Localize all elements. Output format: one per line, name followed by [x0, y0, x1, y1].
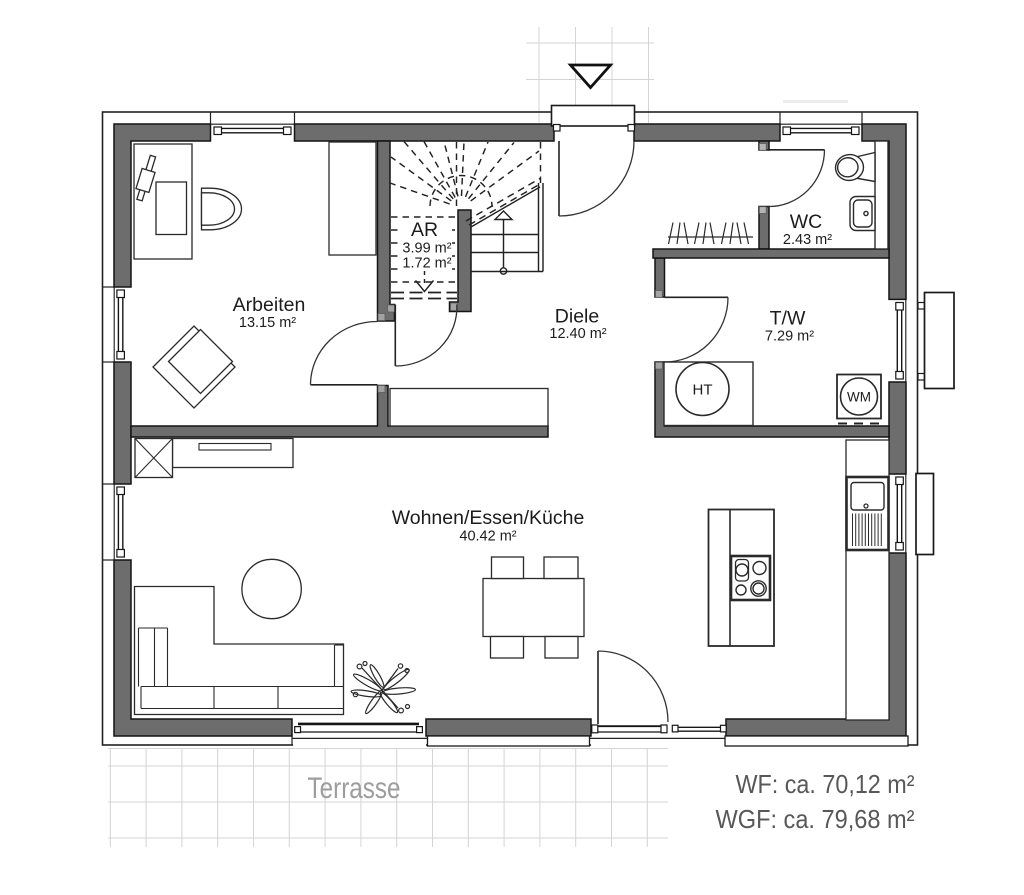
- svg-text:13.15 m²: 13.15 m²: [239, 315, 296, 331]
- svg-text:12.40 m²: 12.40 m²: [549, 326, 606, 342]
- svg-text:Arbeiten: Arbeiten: [233, 294, 306, 316]
- svg-text:7.29 m²: 7.29 m²: [765, 329, 814, 345]
- svg-text:WGF: ca. 79,68 m²: WGF: ca. 79,68 m²: [716, 804, 915, 834]
- svg-text:Diele: Diele: [555, 306, 599, 328]
- svg-text:AR: AR: [411, 219, 438, 241]
- svg-text:WC: WC: [790, 211, 823, 233]
- svg-text:3.99 m²: 3.99 m²: [402, 241, 451, 257]
- svg-text:1.72 m²: 1.72 m²: [402, 256, 451, 272]
- svg-text:WM: WM: [847, 390, 871, 405]
- svg-text:40.42 m²: 40.42 m²: [459, 529, 516, 545]
- svg-text:WF: ca. 70,12 m²: WF: ca. 70,12 m²: [736, 769, 915, 799]
- svg-text:Terrasse: Terrasse: [308, 772, 401, 805]
- svg-text:HT: HT: [693, 382, 713, 399]
- svg-text:2.43 m²: 2.43 m²: [783, 232, 832, 248]
- svg-text:Wohnen/Essen/Küche: Wohnen/Essen/Küche: [392, 507, 585, 529]
- svg-text:T/W: T/W: [770, 308, 806, 330]
